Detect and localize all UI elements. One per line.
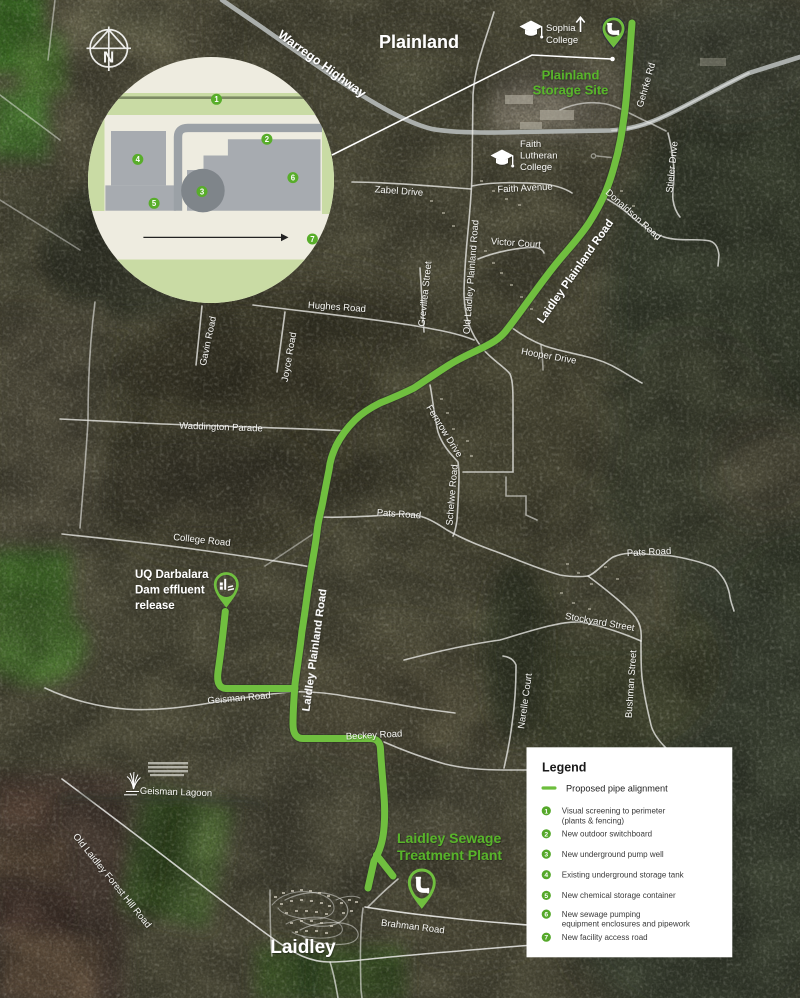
- svg-text:equipment enclosures and pipew: equipment enclosures and pipework: [562, 920, 691, 929]
- svg-text:Storage Site: Storage Site: [533, 82, 609, 97]
- svg-text:New facility access road: New facility access road: [562, 933, 648, 942]
- svg-text:5: 5: [544, 893, 548, 900]
- svg-text:2: 2: [544, 831, 548, 838]
- svg-text:Lutheran: Lutheran: [520, 151, 558, 162]
- svg-text:UQ Darbalara: UQ Darbalara: [135, 569, 209, 581]
- svg-text:Plainland: Plainland: [542, 68, 600, 83]
- svg-text:Visual screening to perimeter: Visual screening to perimeter: [562, 807, 666, 816]
- svg-text:Laidley Sewage: Laidley Sewage: [397, 830, 501, 846]
- svg-text:5: 5: [152, 199, 157, 208]
- svg-text:1: 1: [214, 95, 219, 104]
- svg-text:New chemical storage container: New chemical storage container: [562, 891, 676, 900]
- svg-text:N: N: [103, 50, 114, 67]
- svg-text:6: 6: [544, 912, 548, 919]
- svg-text:6: 6: [291, 173, 296, 182]
- svg-text:2: 2: [265, 135, 270, 144]
- svg-text:4: 4: [136, 155, 141, 164]
- svg-text:New outdoor switchboard: New outdoor switchboard: [562, 830, 652, 839]
- svg-text:New underground pump well: New underground pump well: [562, 850, 664, 859]
- svg-text:3: 3: [544, 852, 548, 859]
- svg-text:release: release: [135, 600, 175, 612]
- svg-text:4: 4: [544, 872, 548, 879]
- svg-text:7: 7: [310, 235, 314, 244]
- svg-text:Dam effluent: Dam effluent: [135, 585, 205, 597]
- svg-text:Laidley: Laidley: [270, 937, 336, 958]
- svg-text:College: College: [520, 162, 552, 173]
- svg-text:Treatment Plant: Treatment Plant: [397, 847, 502, 863]
- svg-text:Plainland: Plainland: [379, 32, 459, 52]
- svg-text:Legend: Legend: [542, 761, 586, 775]
- svg-text:Sophia: Sophia: [546, 23, 576, 34]
- svg-text:7: 7: [544, 935, 548, 942]
- svg-text:Faith: Faith: [520, 139, 541, 150]
- svg-text:Pats Road: Pats Road: [627, 546, 672, 559]
- svg-text:(plants & fencing): (plants & fencing): [562, 816, 625, 825]
- svg-text:1: 1: [544, 808, 548, 815]
- svg-text:Proposed pipe alignment: Proposed pipe alignment: [566, 784, 668, 794]
- svg-text:3: 3: [200, 187, 205, 196]
- svg-text:New sewage pumping: New sewage pumping: [562, 910, 641, 919]
- svg-text:Existing underground storage t: Existing underground storage tank: [562, 871, 685, 880]
- svg-text:College: College: [546, 35, 578, 46]
